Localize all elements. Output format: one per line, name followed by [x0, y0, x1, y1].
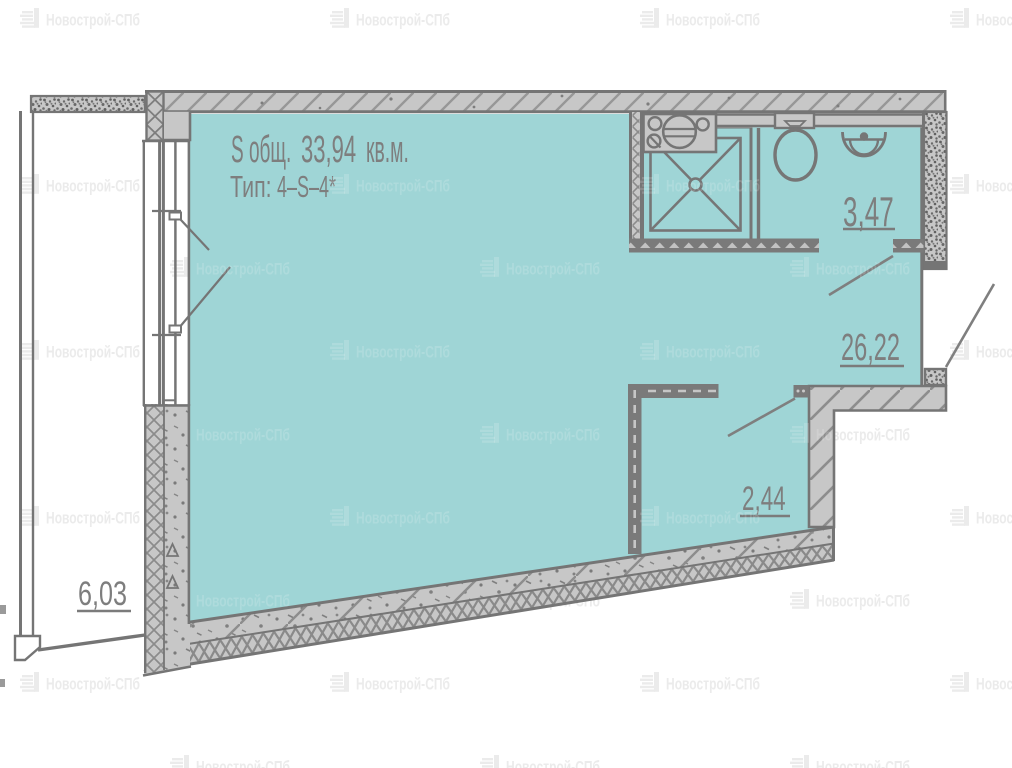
svg-text:4–S–4*: 4–S–4* — [277, 170, 336, 204]
svg-text:6,03: 6,03 — [78, 575, 127, 613]
svg-text:кв.м.: кв.м. — [366, 129, 409, 171]
svg-text:26,22: 26,22 — [841, 325, 900, 368]
svg-text:Тип:: Тип: — [230, 169, 272, 204]
svg-text:33,94: 33,94 — [301, 128, 356, 171]
svg-text:S общ.: S общ. — [231, 129, 291, 171]
